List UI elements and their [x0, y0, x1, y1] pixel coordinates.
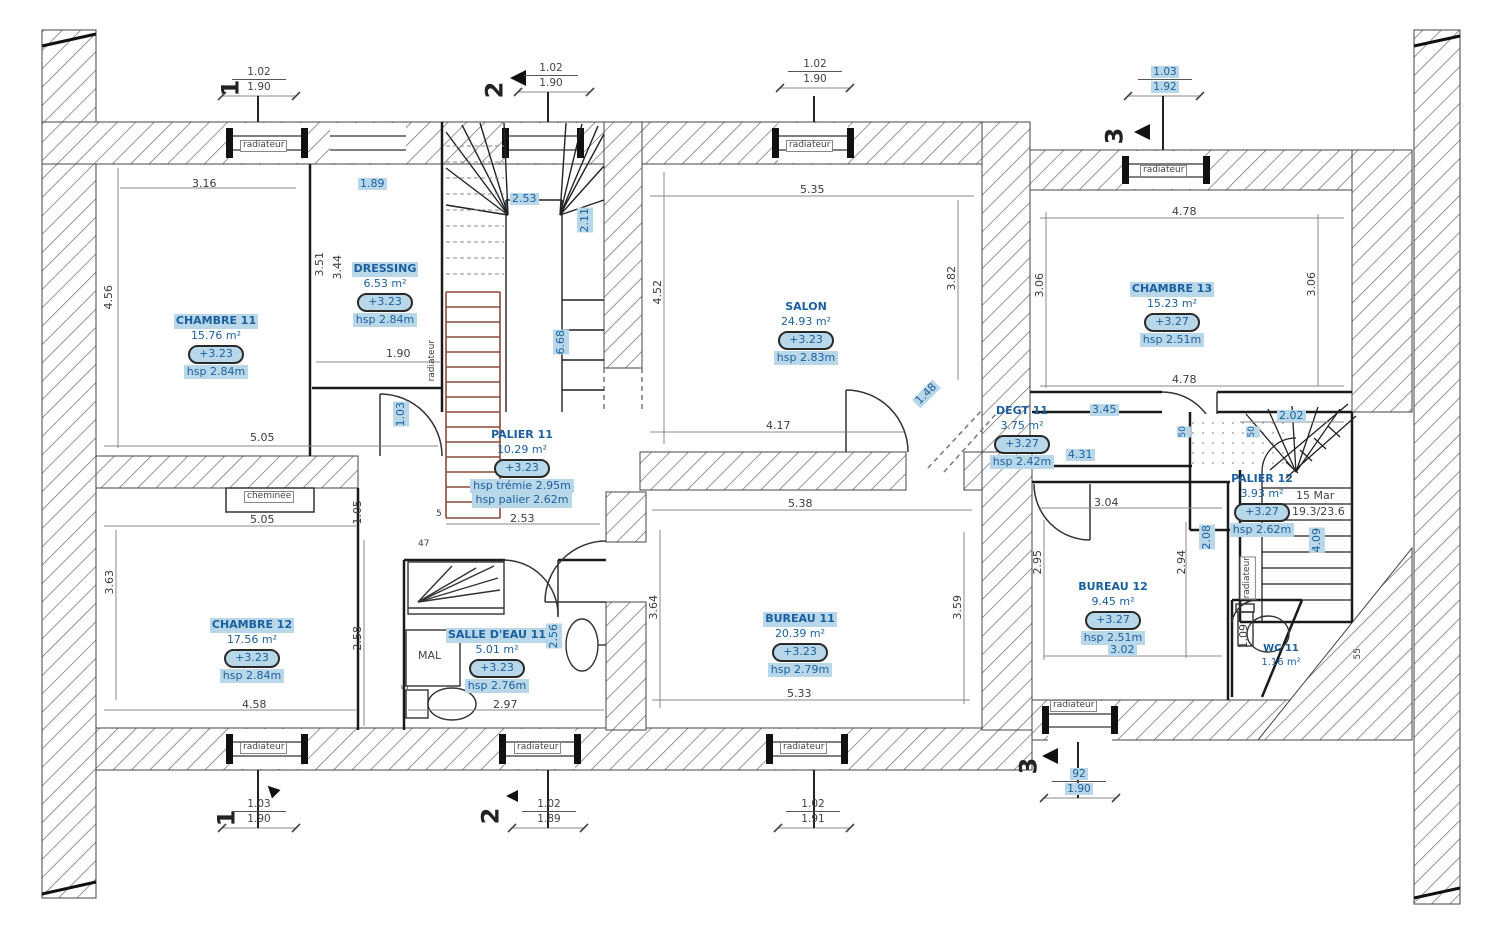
dim-dressing-width: 1.90 [386, 348, 411, 360]
label-radiateur-stair: radiateur [428, 340, 438, 381]
dim-sde-small-b: 47 [418, 540, 429, 550]
section-marker-2-bottom: 2 [476, 808, 504, 825]
room-name: CHAMBRE 12 [210, 618, 294, 633]
room-level: +3.23 [772, 643, 828, 662]
room-name: WC 11 [1263, 642, 1299, 656]
section-dim-mid-top: 1.021.90 [788, 58, 842, 85]
room-hsp: hsp 2.76m [465, 679, 529, 694]
label-radiateur-top3: radiateur [1140, 165, 1187, 177]
room-level: +3.23 [357, 293, 413, 312]
room-level: +3.23 [778, 331, 834, 350]
dim-chambre11-left: 4.56 [103, 285, 115, 310]
room-hsp: hsp 2.62m [1230, 523, 1294, 538]
dim-chambre12-right: 2.58 [352, 626, 364, 651]
room-label-chambre12: CHAMBRE 12 17.56 m² +3.23 hsp 2.84m [187, 618, 317, 683]
room-hsp: hsp 2.84m [353, 313, 417, 328]
room-level: +3.23 [224, 649, 280, 668]
room-name: CHAMBRE 13 [1130, 282, 1214, 297]
room-level: +3.23 [494, 459, 550, 478]
dim-stair-right: 2.11 [577, 208, 593, 233]
dim-wc-left: 1.09 [1238, 624, 1250, 649]
dim-sde-bottom: 2.97 [493, 699, 518, 711]
stair-ratio-note: 19.3/23.6 [1292, 506, 1345, 518]
dim-stair2-right: 4.09 [1309, 528, 1325, 553]
dim-bureau11-left: 3.64 [648, 595, 660, 620]
room-area: 17.56 m² [187, 633, 317, 648]
dim-palier-height: 6.68 [553, 330, 569, 355]
room-hsp: hsp 2.84m [220, 669, 284, 684]
room-label-salon: SALON 24.93 m² +3.23 hsp 2.83m [741, 300, 871, 365]
dim-wc-small: 55 [1354, 648, 1364, 659]
label-radiateur-bot4: radiateur [1050, 700, 1097, 712]
room-area: 15.76 m² [151, 329, 281, 344]
room-area: 3.75 m² [957, 419, 1087, 434]
section-triangle-3-top [1134, 124, 1150, 140]
section-dim-3-top: 1.031.92 [1138, 66, 1192, 93]
label-radiateur-top1: radiateur [240, 140, 287, 152]
room-level: +3.27 [994, 435, 1050, 454]
floor-plan-drawing [0, 0, 1500, 934]
dim-chambre12-top: 5.05 [250, 514, 275, 526]
room-level: +3.27 [1234, 503, 1290, 522]
room-name: PALIER 12 [1231, 472, 1293, 487]
room-label-chambre13: CHAMBRE 13 15.23 m² +3.27 hsp 2.51m [1107, 282, 1237, 347]
room-label-bureau12: BUREAU 12 9.45 m² +3.27 hsp 2.51m [1048, 580, 1178, 645]
dim-chambre11-bottom: 5.05 [250, 432, 275, 444]
dim-chambre12-gap: 1.05 [352, 500, 364, 525]
section-dim-1-bottom: 1.031.90 [232, 798, 286, 825]
dim-chambre13-bottom: 4.78 [1172, 374, 1197, 386]
dim-palier12-top: 2.02 [1277, 410, 1306, 422]
room-name: SALON [785, 300, 827, 315]
dim-stair-top: 2.53 [510, 193, 539, 205]
label-radiateur-bot3: radiateur [780, 742, 827, 754]
section-marker-3-bottom: 3 [1014, 758, 1042, 775]
dim-sde-top: 2.53 [510, 513, 535, 525]
section-dim-1-top: 1.021.90 [232, 66, 286, 93]
dim-salon-top: 5.35 [800, 184, 825, 196]
section-dim-2-top: 1.021.90 [524, 62, 578, 89]
room-name: DEGT 11 [996, 404, 1048, 419]
dim-bureau11-top: 5.38 [788, 498, 813, 510]
label-radiateur-bot2: radiateur [514, 742, 561, 754]
dim-bureau12-right: 2.94 [1176, 550, 1188, 575]
label-radiateur-top2: radiateur [786, 140, 833, 152]
room-name: PALIER 11 [491, 428, 553, 443]
room-area: 15.23 m² [1107, 297, 1237, 312]
dim-bureau11-bottom: 5.33 [787, 688, 812, 700]
dim-small-50a: 50 [1177, 426, 1191, 437]
dim-bureau12-bottom: 3.02 [1108, 644, 1137, 656]
dim-salon-left: 4.52 [652, 280, 664, 305]
dim-small-50b: 50 [1246, 426, 1260, 437]
section-marker-3-top: 3 [1100, 128, 1128, 145]
label-radiateur-bot1: radiateur [240, 742, 287, 754]
room-level: +3.23 [188, 345, 244, 364]
stair-steps-note: 15 Mar [1296, 490, 1334, 502]
dim-chambre12-bottom: 4.58 [242, 699, 267, 711]
dim-dressing-top: 1.89 [358, 178, 387, 190]
section-dim-3-bottom: 921.90 [1052, 768, 1106, 795]
room-hsp: hsp 2.42m [990, 455, 1054, 470]
section-dim-2-bottom: 1.021.89 [522, 798, 576, 825]
room-label-palier11: PALIER 11 10.29 m² +3.23 hsp trémie 2.95… [452, 428, 592, 508]
room-level: +3.27 [1085, 611, 1141, 630]
dim-dressing-left-b: 3.44 [332, 255, 344, 280]
dim-degt-b: 4.31 [1066, 449, 1095, 461]
room-area: 24.93 m² [741, 315, 871, 330]
dim-stair2-left: 2.08 [1199, 525, 1215, 550]
room-name: SALLE D'EAU 11 [446, 628, 548, 643]
room-name: BUREAU 11 [763, 612, 837, 627]
room-level: +3.27 [1144, 313, 1200, 332]
dim-bureau11-right: 3.59 [952, 595, 964, 620]
label-cheminee: cheminée [244, 491, 294, 503]
room-area: 9.45 m² [1048, 595, 1178, 610]
room-hsp: hsp 2.84m [184, 365, 248, 380]
room-area: 5.01 m² [432, 643, 562, 658]
section-triangle-2-bottom [506, 790, 518, 802]
label-mal: MAL [418, 650, 441, 662]
section-triangle-3-bottom [1042, 748, 1058, 764]
dim-chambre12-left: 3.63 [104, 570, 116, 595]
dim-salon-right: 3.82 [946, 266, 958, 291]
section-dim-mid-bottom: 1.021.91 [786, 798, 840, 825]
room-level: +3.23 [469, 659, 525, 678]
room-name: DRESSING [352, 262, 419, 277]
dim-salon-bottom: 4.17 [766, 420, 791, 432]
dim-bureau12-left: 2.95 [1032, 550, 1044, 575]
room-label-wc11: WC 11 1.16 m² [1246, 642, 1316, 669]
dim-chambre13-left: 3.06 [1034, 273, 1046, 298]
dim-chambre11-top: 3.16 [192, 178, 217, 190]
room-area: 20.39 m² [735, 627, 865, 642]
dim-degt-a: 3.45 [1090, 404, 1119, 416]
room-hsp: hsp trémie 2.95m [470, 479, 574, 494]
room-hsp: hsp 2.79m [768, 663, 832, 678]
room-label-chambre11: CHAMBRE 11 15.76 m² +3.23 hsp 2.84m [151, 314, 281, 379]
room-hsp: hsp 2.83m [774, 351, 838, 366]
floor-plan: CHAMBRE 11 15.76 m² +3.23 hsp 2.84m DRES… [0, 0, 1500, 934]
dim-bureau12-top: 3.04 [1094, 497, 1119, 509]
room-area: 1.16 m² [1246, 656, 1316, 670]
room-label-salle-eau11: SALLE D'EAU 11 5.01 m² +3.23 hsp 2.76m [432, 628, 562, 693]
label-radiateur-right: radiateur [1240, 556, 1256, 599]
room-name: BUREAU 12 [1078, 580, 1148, 595]
room-hsp: hsp 2.51m [1140, 333, 1204, 348]
room-name: CHAMBRE 11 [174, 314, 258, 329]
dim-sde-small-a: 5 [436, 510, 442, 520]
room-area: 10.29 m² [452, 443, 592, 458]
dim-sde-right: 2.56 [546, 624, 562, 649]
dim-chambre13-top: 4.78 [1172, 206, 1197, 218]
dim-sde-small-c: 5 [402, 684, 412, 690]
dim-chambre13-right: 3.06 [1306, 272, 1318, 297]
room-hsp2: hsp palier 2.62m [472, 493, 571, 508]
room-label-bureau11: BUREAU 11 20.39 m² +3.23 hsp 2.79m [735, 612, 865, 677]
dim-dressing-left-a: 3.51 [314, 252, 326, 277]
section-marker-2-top: 2 [480, 82, 508, 99]
dim-palier-door: 1.03 [393, 402, 409, 427]
